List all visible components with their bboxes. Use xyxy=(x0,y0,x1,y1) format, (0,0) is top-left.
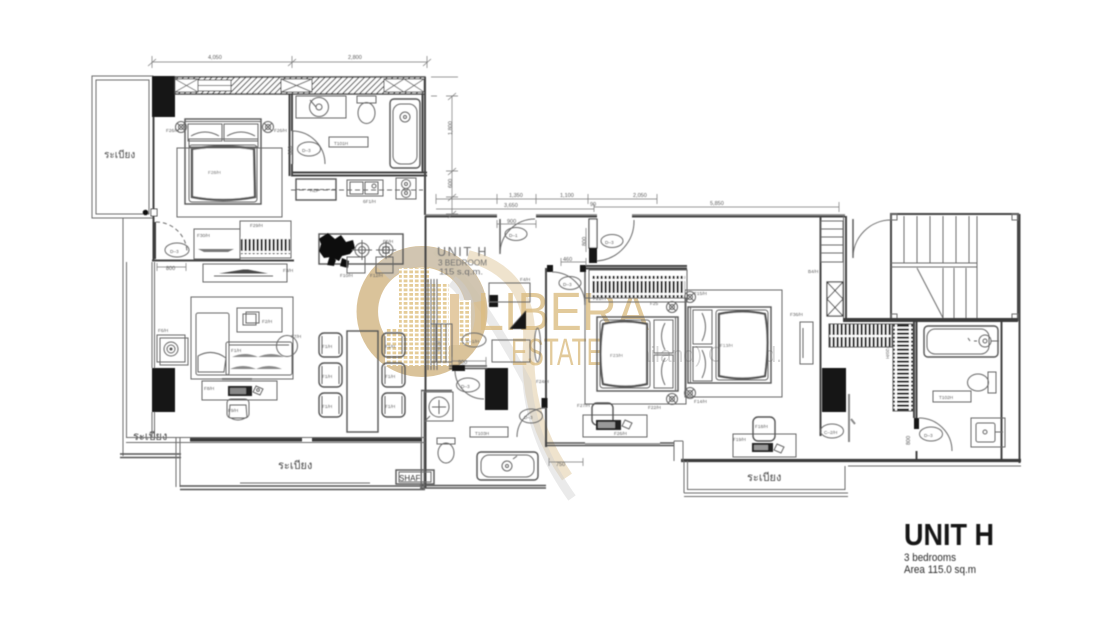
svg-text:B7/H: B7/H xyxy=(436,341,441,351)
svg-text:ระเบียง: ระเบียง xyxy=(747,471,781,484)
svg-text:F19/H: F19/H xyxy=(733,437,746,442)
svg-text:F1/H: F1/H xyxy=(231,348,241,353)
svg-text:5,850: 5,850 xyxy=(710,201,724,207)
svg-text:F23/H: F23/H xyxy=(610,353,623,358)
svg-text:F1/H: F1/H xyxy=(322,374,332,379)
svg-text:D–1: D–1 xyxy=(509,233,518,238)
svg-text:90: 90 xyxy=(590,202,596,208)
svg-text:F1/H: F1/H xyxy=(385,374,395,379)
svg-text:F10/H: F10/H xyxy=(340,273,353,278)
svg-text:750: 750 xyxy=(556,462,565,468)
svg-text:F22/H: F22/H xyxy=(648,405,661,410)
svg-text:2,050: 2,050 xyxy=(633,193,647,199)
svg-text:F3/H: F3/H xyxy=(283,268,293,273)
svg-text:D–3: D–3 xyxy=(461,384,470,389)
svg-text:F1/H: F1/H xyxy=(385,344,395,349)
svg-text:460: 460 xyxy=(563,257,572,263)
svg-text:B4/H: B4/H xyxy=(808,269,818,274)
svg-text:ESTATE: ESTATE xyxy=(511,332,603,374)
svg-text:800: 800 xyxy=(582,237,588,246)
svg-text:D–3: D–3 xyxy=(302,148,311,153)
svg-text:600: 600 xyxy=(448,179,454,188)
svg-text:SHAF: SHAF xyxy=(399,474,420,483)
svg-text:F4/H: F4/H xyxy=(520,277,530,282)
svg-text:F20/H: F20/H xyxy=(885,346,890,359)
svg-text:F30/H: F30/H xyxy=(197,233,210,238)
svg-text:F25: F25 xyxy=(650,301,658,306)
svg-text:600: 600 xyxy=(288,146,294,155)
svg-text:F14/H: F14/H xyxy=(694,399,707,404)
svg-text:D–3: D–3 xyxy=(170,249,179,254)
svg-text:F26/H: F26/H xyxy=(614,431,627,436)
svg-text:UNIT H: UNIT H xyxy=(904,517,994,552)
svg-text:4,050: 4,050 xyxy=(208,55,222,61)
svg-text:F36/H: F36/H xyxy=(790,312,803,317)
svg-text:E–1/H: E–1/H xyxy=(466,339,479,344)
svg-text:D–3: D–3 xyxy=(563,282,572,287)
svg-text:T103H: T103H xyxy=(475,431,489,436)
svg-text:C–2/H: C–2/H xyxy=(824,430,837,435)
svg-text:F24/H: F24/H xyxy=(536,379,549,384)
svg-text:1,350: 1,350 xyxy=(509,193,523,199)
svg-text:F9/H: F9/H xyxy=(228,408,238,413)
svg-text:T101H: T101H xyxy=(334,141,348,146)
svg-text:800: 800 xyxy=(166,266,175,272)
svg-text:REF: REF xyxy=(310,188,319,193)
svg-text:F18/H: F18/H xyxy=(755,424,768,429)
svg-text:F2/H: F2/H xyxy=(262,319,272,324)
svg-text:800: 800 xyxy=(906,436,912,445)
svg-text:F5/H: F5/H xyxy=(383,239,393,244)
svg-text:115 s.q.m.: 115 s.q.m. xyxy=(439,267,483,277)
svg-text:F6/H: F6/H xyxy=(158,328,168,333)
svg-text:F28/H: F28/H xyxy=(208,170,221,175)
svg-text:F7/H: F7/H xyxy=(291,334,301,339)
svg-text:F13/H: F13/H xyxy=(720,343,733,348)
svg-text:F26/H: F26/H xyxy=(166,128,179,133)
svg-text:T102H: T102H xyxy=(939,395,953,400)
svg-text:1,800: 1,800 xyxy=(448,121,454,135)
svg-text:6F1/H: 6F1/H xyxy=(363,199,376,204)
svg-text:ระเบียง: ระเบียง xyxy=(278,459,312,472)
svg-text:1,100: 1,100 xyxy=(560,193,574,199)
svg-text:F1/H: F1/H xyxy=(322,344,332,349)
svg-text:2,800: 2,800 xyxy=(348,55,362,61)
svg-text:ระเบียง: ระเบียง xyxy=(104,149,135,161)
svg-text:D–3: D–3 xyxy=(924,433,933,438)
svg-text:F27/H: F27/H xyxy=(577,403,590,408)
svg-text:3 bedrooms: 3 bedrooms xyxy=(904,552,956,564)
svg-text:F1/H: F1/H xyxy=(385,404,395,409)
svg-text:D–3: D–3 xyxy=(605,240,614,245)
svg-text:F12/H: F12/H xyxy=(370,273,383,278)
svg-text:F1/H: F1/H xyxy=(322,404,332,409)
svg-text:F26/H: F26/H xyxy=(274,128,287,133)
svg-text:F15/H: F15/H xyxy=(694,291,707,296)
svg-text:900: 900 xyxy=(507,219,516,225)
svg-text:Area 115.0 sq.m: Area 115.0 sq.m xyxy=(904,564,976,576)
svg-text:F8/H: F8/H xyxy=(204,386,214,391)
svg-text:F29/H: F29/H xyxy=(250,223,263,228)
svg-text:ระเบียง: ระเบียง xyxy=(133,430,167,443)
svg-text:D–3: D–3 xyxy=(524,415,533,420)
svg-text:3,650: 3,650 xyxy=(504,203,518,209)
